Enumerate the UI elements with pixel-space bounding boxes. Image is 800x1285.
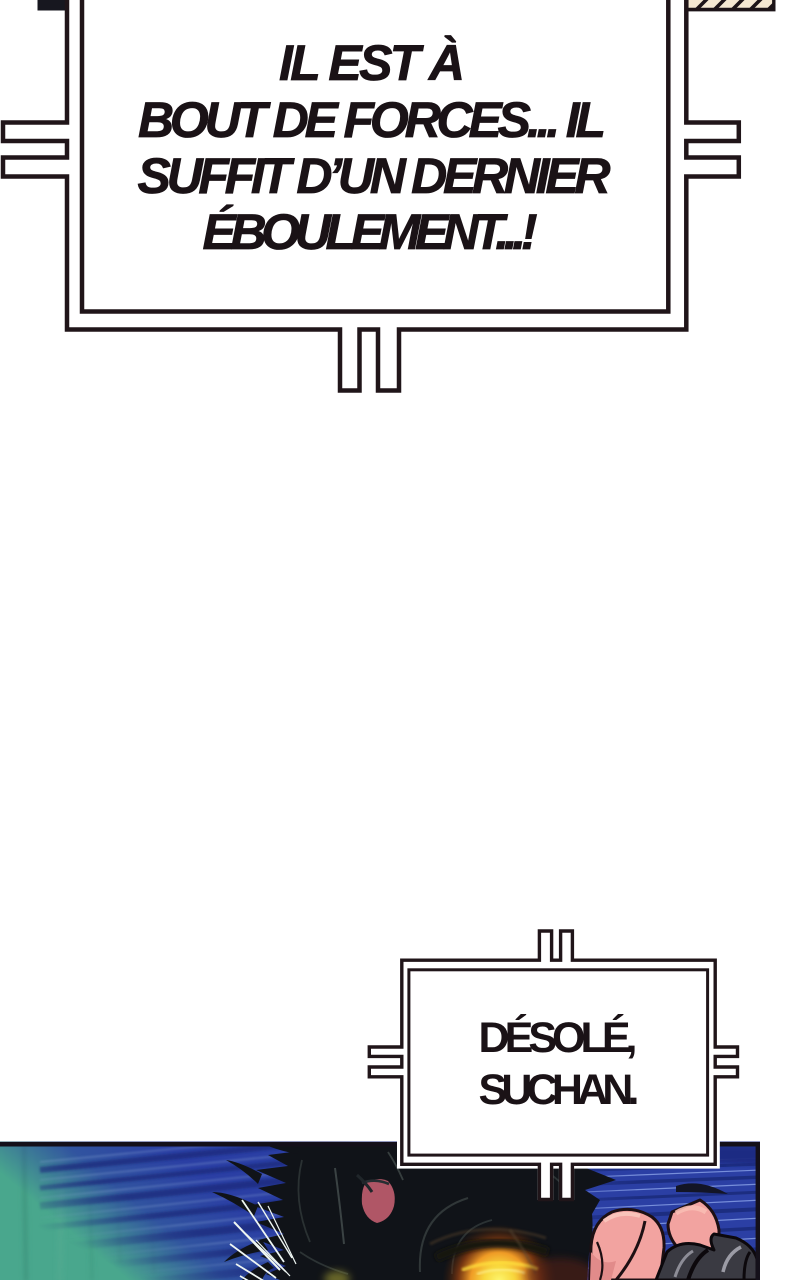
svg-text:SUFFIT D’UN DERNIER: SUFFIT D’UN DERNIER (138, 148, 611, 204)
svg-text:BOUT DE FORCES... IL: BOUT DE FORCES... IL (138, 92, 606, 148)
svg-text:DÉSOLÉ,: DÉSOLÉ, (479, 1014, 638, 1062)
svg-text:SUCHAN.: SUCHAN. (479, 1066, 640, 1114)
svg-text:IL EST À: IL EST À (279, 35, 465, 91)
svg-text:ÉBOULEMENT...!: ÉBOULEMENT...! (203, 204, 538, 260)
